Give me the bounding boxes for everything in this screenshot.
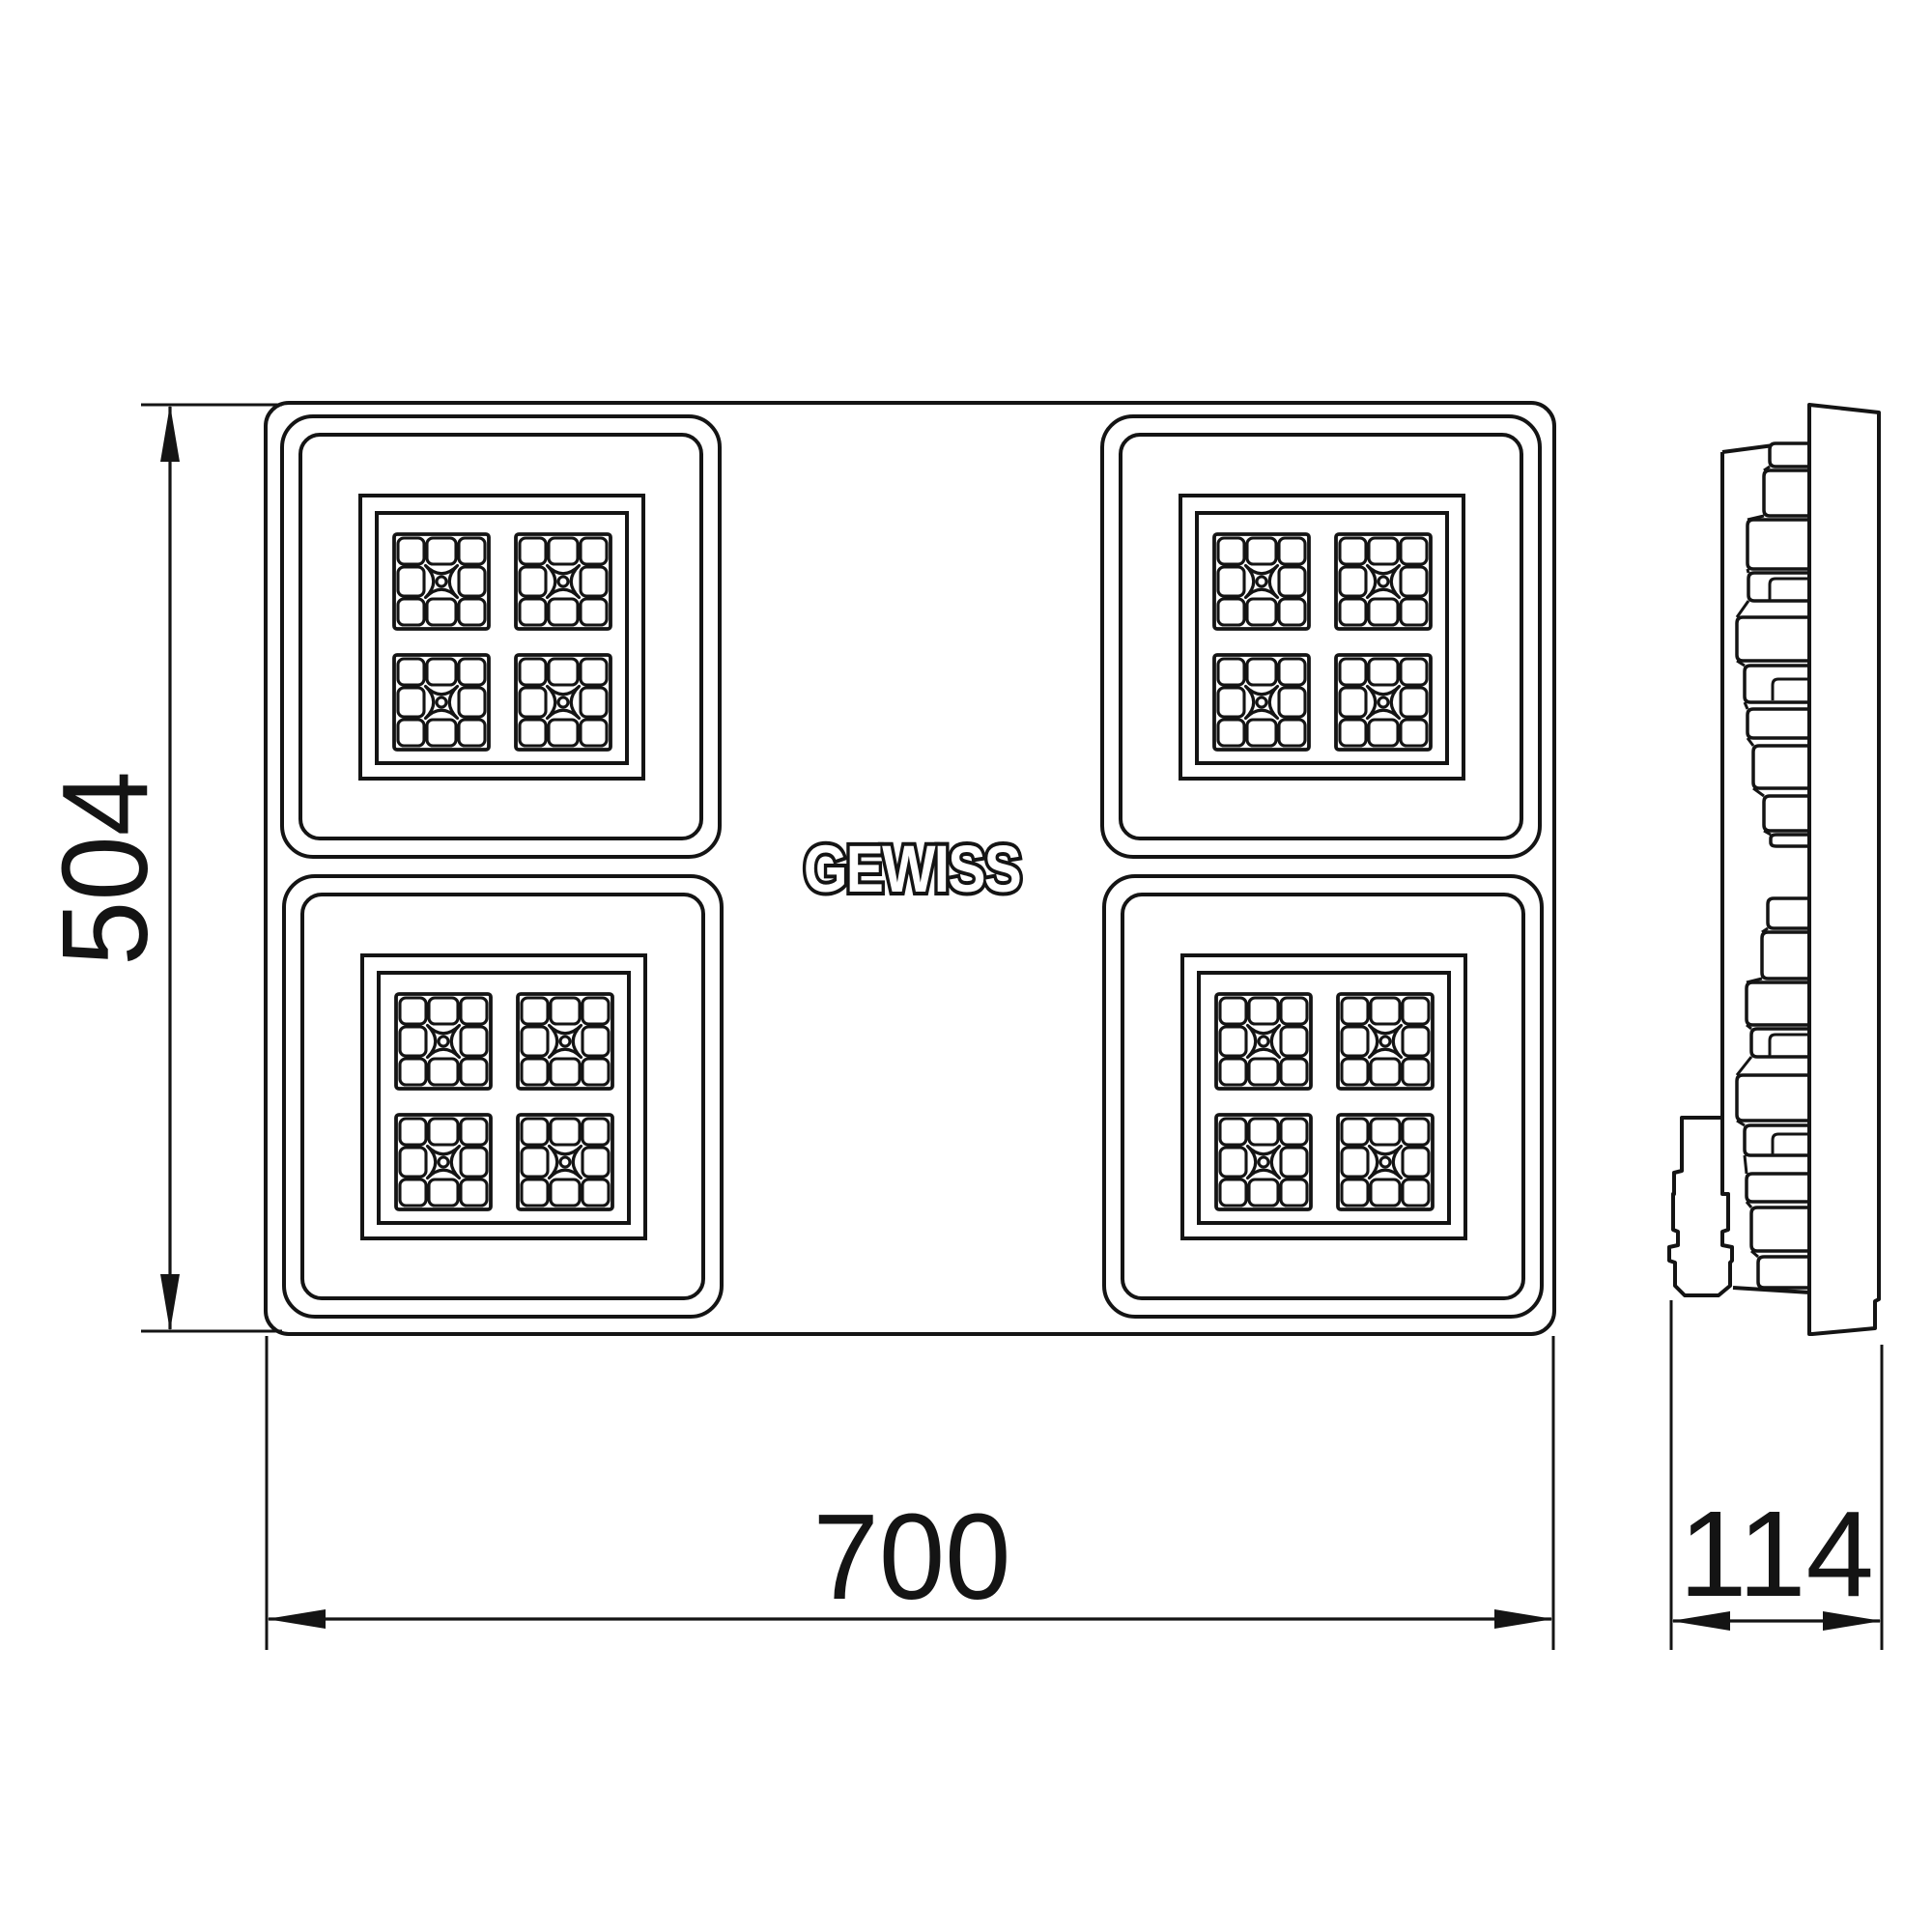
svg-text:700: 700	[813, 1489, 1011, 1625]
svg-text:114: 114	[1679, 1486, 1874, 1622]
svg-text:504: 504	[37, 771, 173, 966]
svg-text:GEWISS: GEWISS	[804, 832, 1021, 907]
